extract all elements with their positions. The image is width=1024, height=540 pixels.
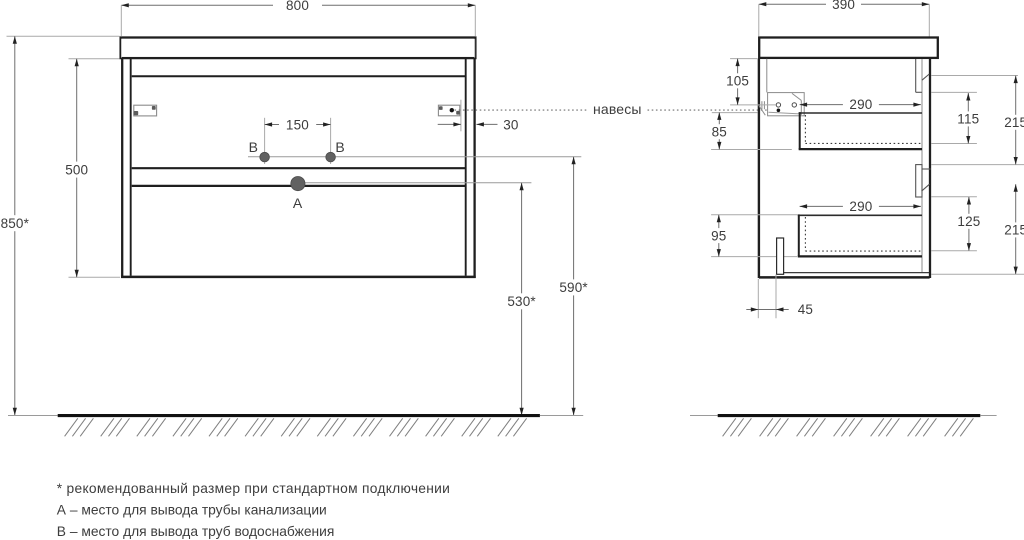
svg-text:30: 30 [503, 118, 518, 133]
svg-text:105: 105 [726, 74, 749, 89]
svg-text:500: 500 [65, 162, 88, 177]
svg-text:115: 115 [957, 112, 979, 127]
svg-text:290: 290 [849, 199, 872, 214]
svg-text:* рекомендованный размер при с: * рекомендованный размер при стандартном… [57, 481, 450, 496]
svg-text:850*: 850* [1, 216, 30, 231]
svg-text:95: 95 [711, 228, 726, 243]
svg-text:А – место для вывода трубы кан: А – место для вывода трубы канализации [57, 503, 327, 518]
svg-text:навесы: навесы [593, 101, 642, 117]
svg-text:215: 215 [1004, 115, 1024, 130]
svg-text:85: 85 [712, 125, 727, 140]
svg-text:390: 390 [832, 0, 855, 12]
svg-text:215: 215 [1004, 223, 1024, 238]
svg-text:В – место для вывода труб водо: В – место для вывода труб водоснабжения [57, 524, 335, 539]
svg-text:530*: 530* [507, 294, 536, 309]
svg-text:290: 290 [849, 97, 872, 112]
svg-text:125: 125 [957, 214, 980, 229]
svg-text:800: 800 [286, 0, 309, 13]
svg-text:A: A [293, 195, 303, 211]
svg-text:B: B [335, 139, 345, 155]
svg-text:45: 45 [798, 302, 813, 317]
svg-text:590*: 590* [559, 280, 588, 295]
svg-text:B: B [249, 139, 259, 155]
svg-text:150: 150 [286, 117, 309, 132]
